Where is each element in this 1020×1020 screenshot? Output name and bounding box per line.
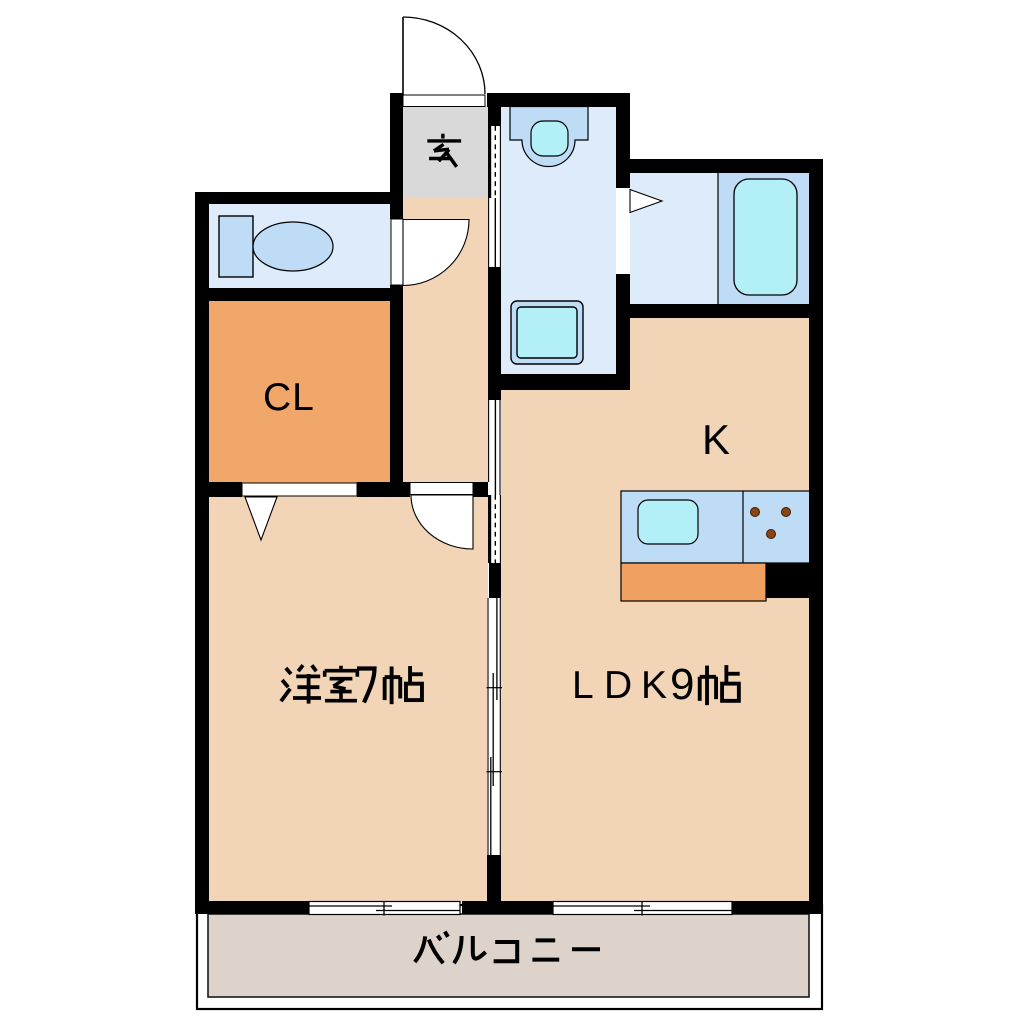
svg-text:CL: CL [263,376,315,419]
svg-text:D: D [604,664,632,707]
svg-text:9: 9 [670,660,694,709]
svg-text:L: L [572,664,594,707]
svg-text:K: K [641,664,667,707]
svg-text:K: K [702,416,730,463]
